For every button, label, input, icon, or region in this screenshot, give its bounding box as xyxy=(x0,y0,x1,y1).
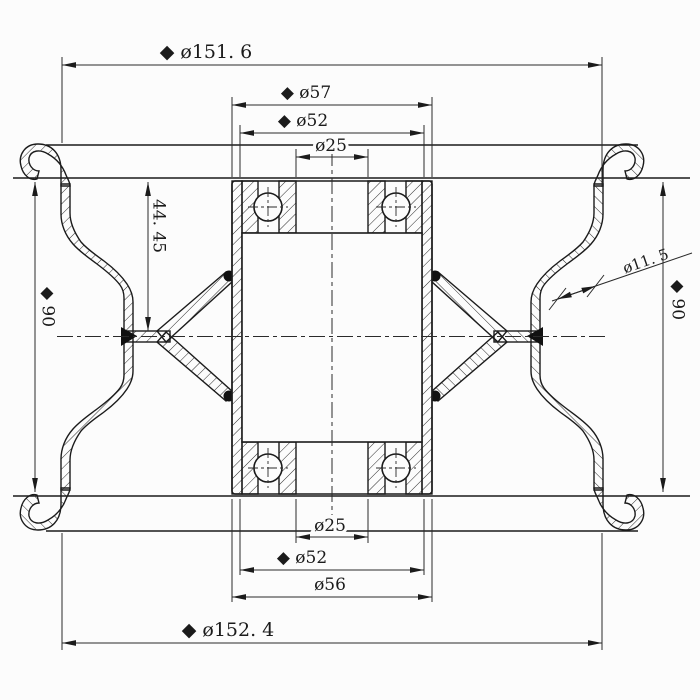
dim-label-hub-step-bottom: ◆ ø52 xyxy=(277,548,327,568)
dim-label-bead-offset: 44. 45 xyxy=(149,199,169,253)
hub-wall-left xyxy=(232,181,242,494)
dim-label-top-flange: ◆ ø151. 6 xyxy=(160,41,253,63)
dim-label-bottom-flange: ◆ ø152. 4 xyxy=(182,619,275,641)
dim-label-rim-width-right: ◆ 90 xyxy=(668,280,688,320)
wheel-rim-section-drawing: ◆ ø151. 6 ◆ ø57 ◆ ø52 ø25 44. 45 xyxy=(0,0,700,700)
spoke-upper xyxy=(157,272,233,342)
drawing-sheet: ◆ ø151. 6 ◆ ø57 ◆ ø52 ø25 44. 45 xyxy=(0,0,700,700)
hub-wall-right xyxy=(422,181,432,494)
rim-flange-top xyxy=(20,144,70,186)
dim-rim-width-left: ◆ 90 xyxy=(35,182,58,492)
dim-label-hub-step-top: ◆ ø52 xyxy=(278,111,328,131)
dim-bore-bottom: ø25 xyxy=(296,499,368,543)
dim-label-hub-outer-top: ◆ ø57 xyxy=(281,83,331,103)
dim-rim-width-right: ◆ 90 xyxy=(663,182,688,492)
dim-label-rim-width-left: ◆ 90 xyxy=(38,287,58,327)
dim-bead-offset: 44. 45 xyxy=(148,182,169,331)
dim-label-bore-bottom: ø25 xyxy=(314,516,346,536)
spoke-lower xyxy=(157,332,233,401)
rim-flange-bottom xyxy=(20,488,70,530)
dim-label-hub-outer-bottom: ø56 xyxy=(314,575,346,595)
dim-label-bore-top: ø25 xyxy=(315,136,347,156)
